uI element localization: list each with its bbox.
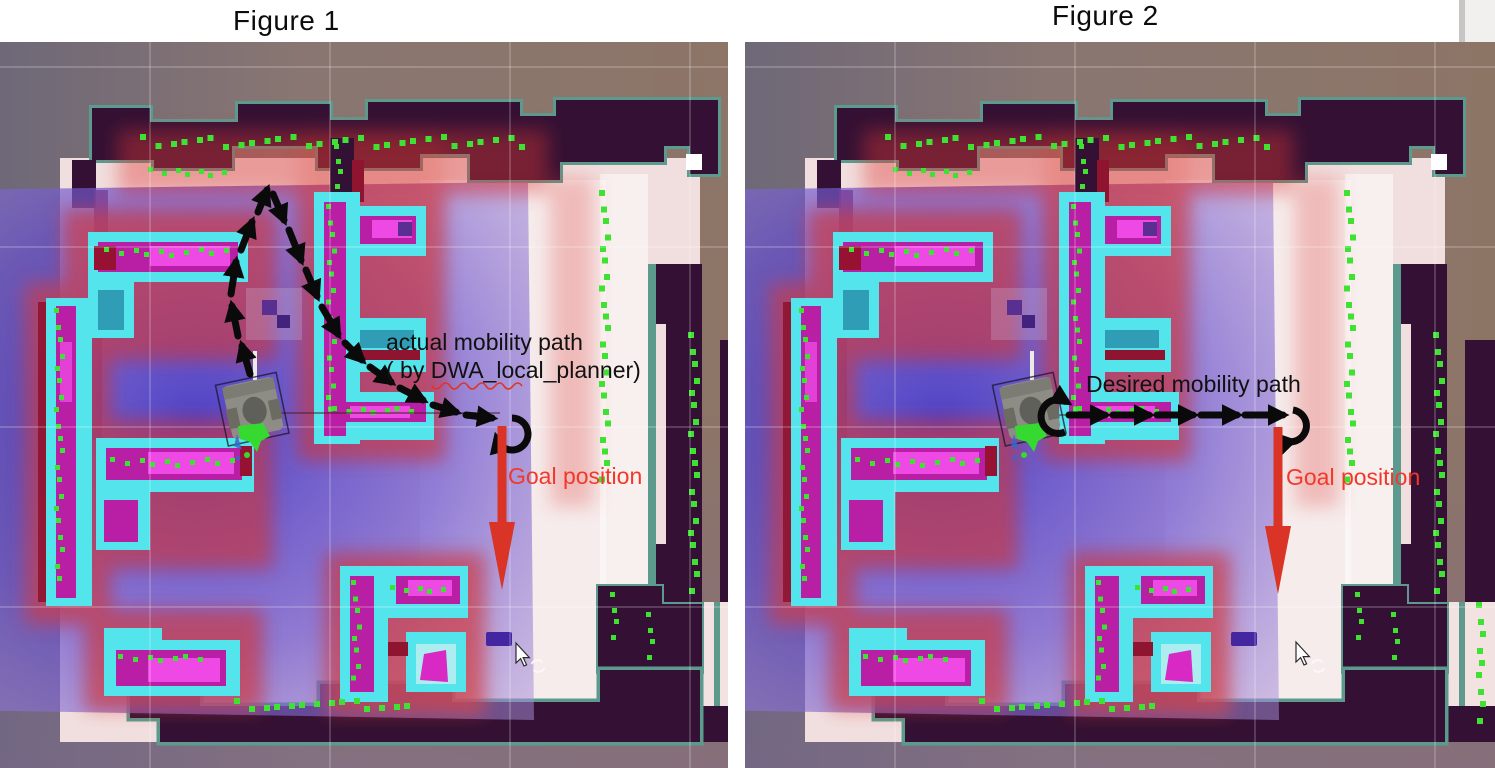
goal-position-label: Goal position [1286,464,1420,490]
goal-position-label: Goal position [508,463,642,489]
figure2-viewport[interactable]: Goal position Desired mobility path [745,42,1495,768]
figure2-title: Figure 2 [1052,0,1159,32]
comparison-figure-page: Figure 1 Figure 2 [0,0,1495,768]
path-annotation-line1: Desired mobility path [1086,371,1301,397]
path-annotation-line2: ( by DWA_local_planner) [386,357,641,383]
window-edge-panel [1465,0,1495,44]
figure1-viewport[interactable]: Goal position actual mobility path ( by … [0,42,728,768]
path-annotation-line1: actual mobility path [386,329,583,355]
figure1-title: Figure 1 [233,5,340,37]
